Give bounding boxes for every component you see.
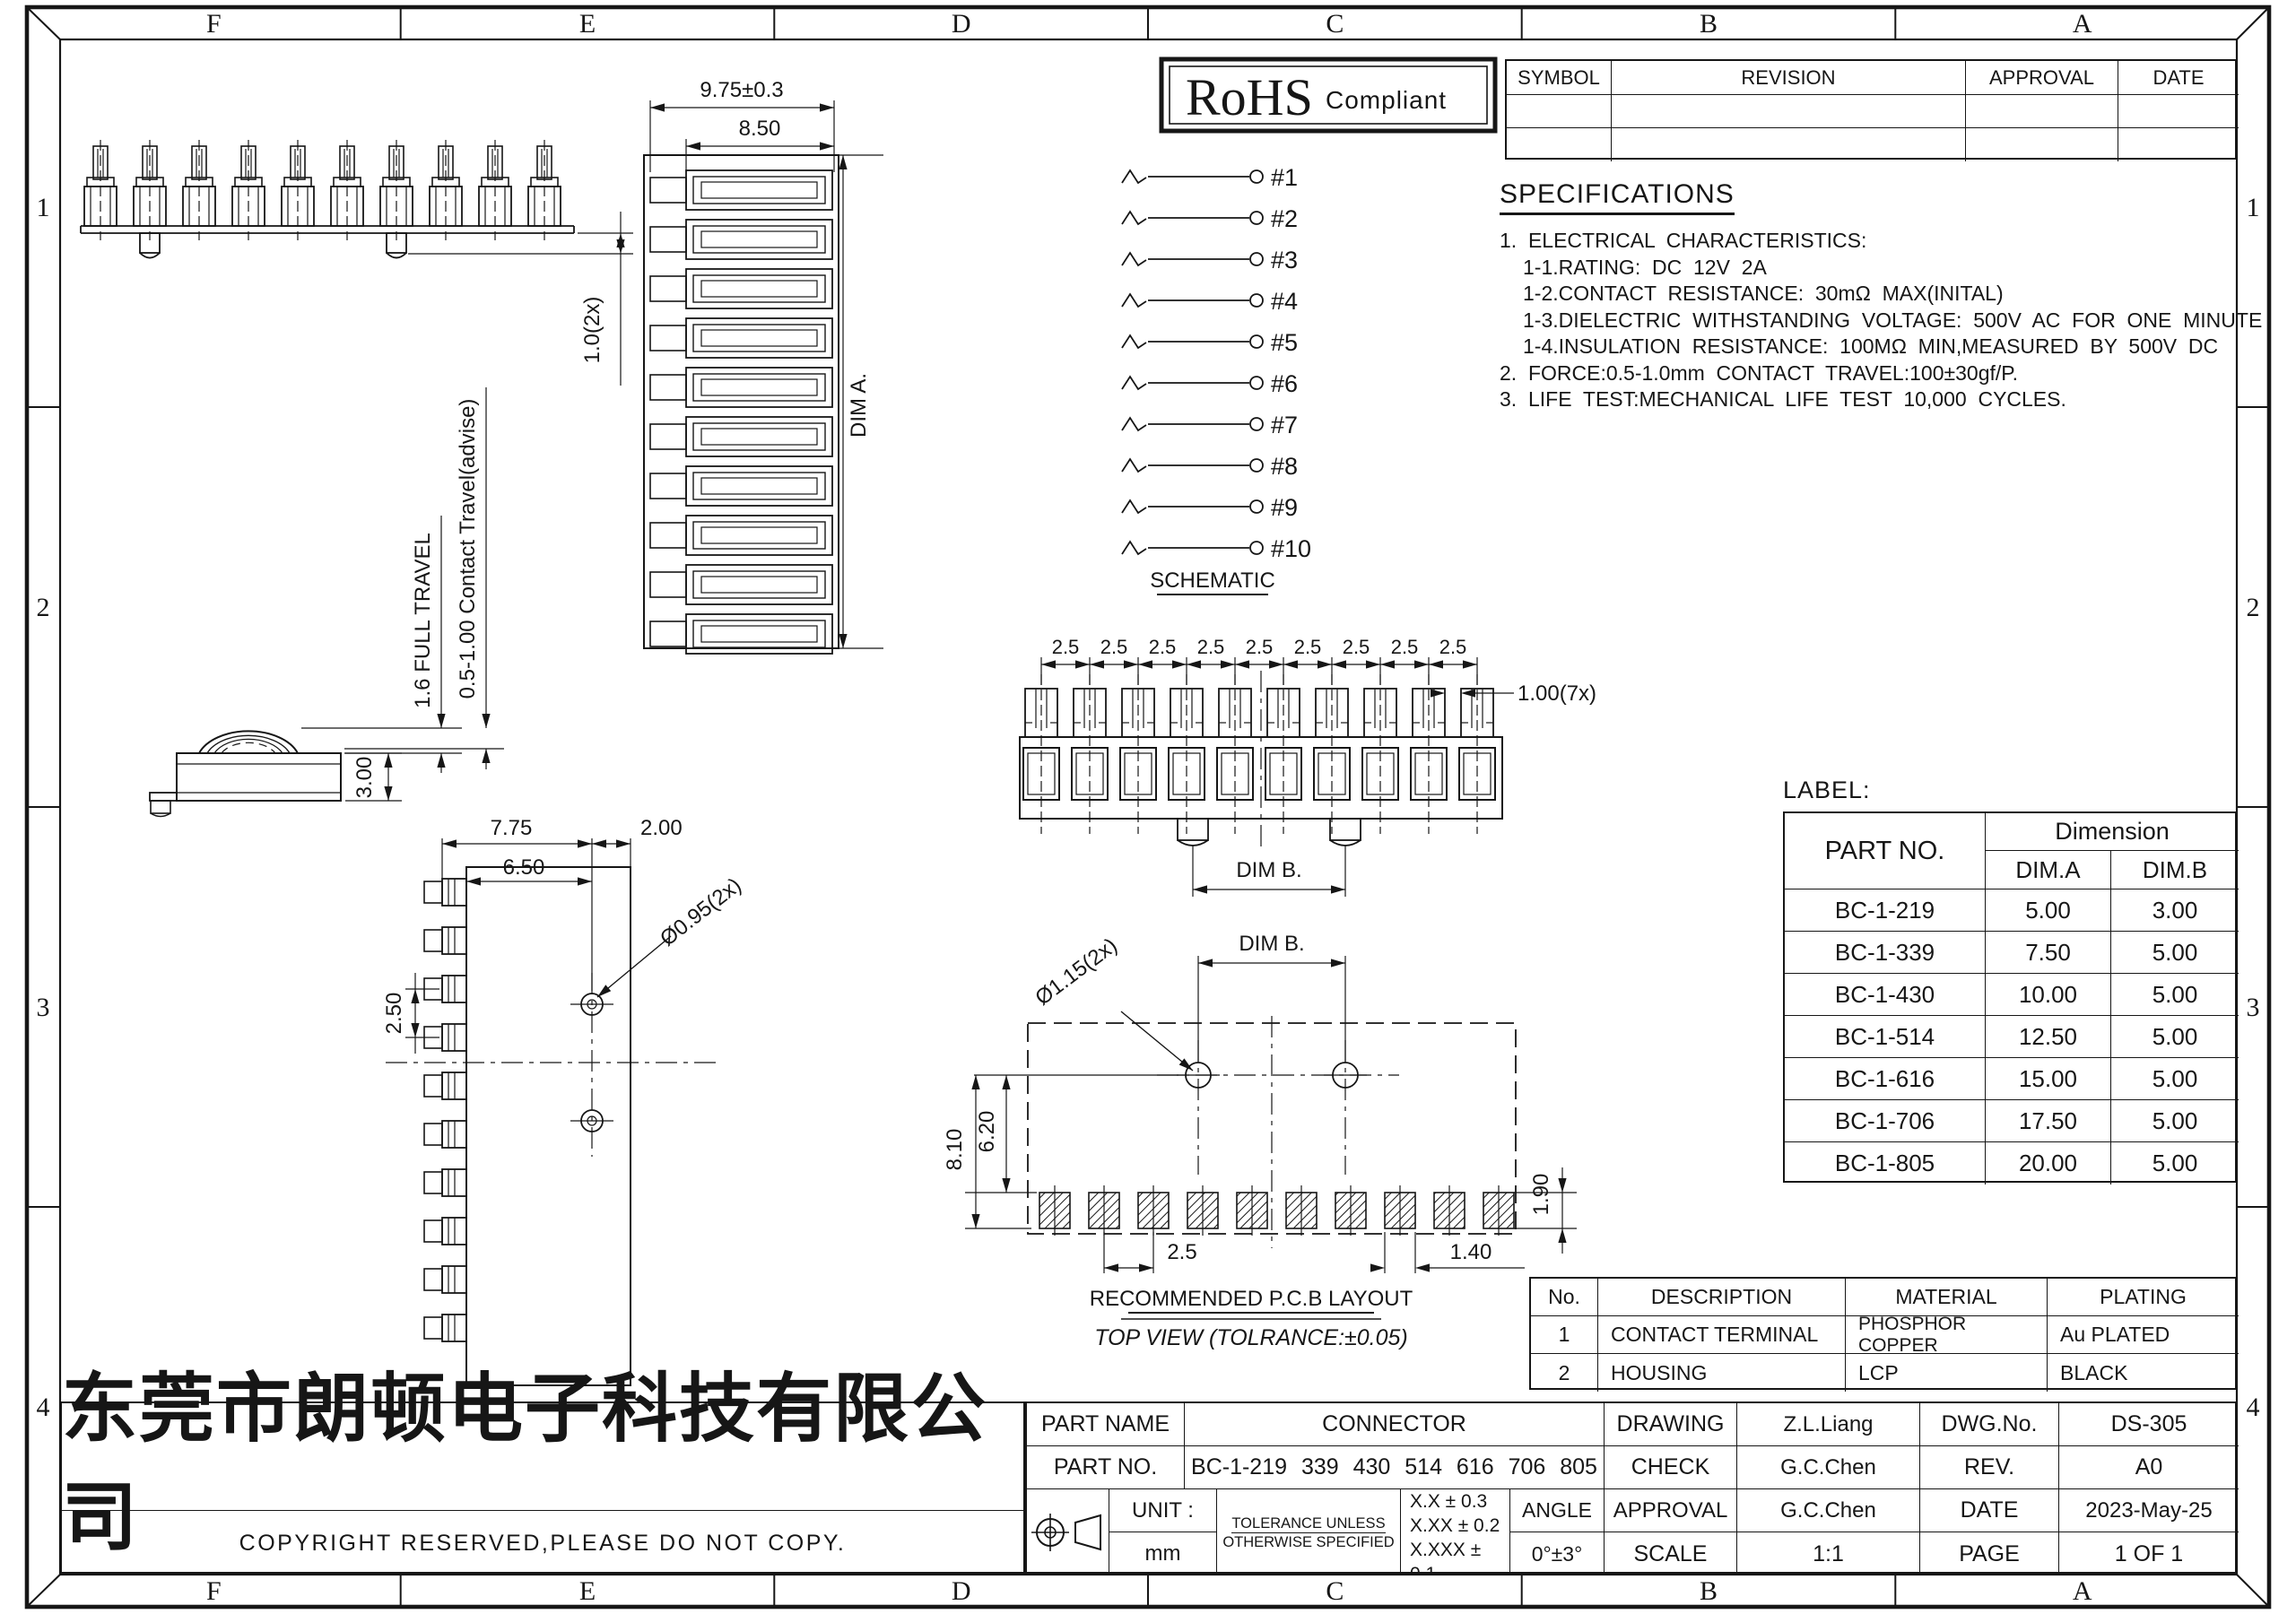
border-column-letter: D [952,9,971,39]
rev-value: A0 [2059,1446,2239,1489]
dim-hole-0-95: Ø0.95(2x) [656,873,746,951]
dim-7-75: 7.75 [491,816,533,840]
label-table-cell: 5.00 [2111,1142,2239,1184]
border-column-letter: B [1700,9,1718,39]
rohs-title: RoHS [1186,68,1313,126]
schematic-pin-label: #5 [1271,329,1298,356]
tolerance-xxx: X.XXX ± 0.1 [1410,1538,1509,1575]
dim-8-10: 8.10 [943,1129,967,1171]
view-front-center: 2.52.52.52.52.52.52.52.52.51.00(7x)DIM B… [1020,636,1596,897]
parts-cell: LCP [1846,1354,2048,1392]
unit-value: mm [1109,1532,1217,1575]
dim-contact-travel: 0.5-1.00 Contact Travel(advise) [456,399,480,699]
rev-label: REV. [1920,1446,2059,1489]
border-column-letter: E [579,1576,596,1606]
label-table-dimension-header: Dimension [1986,813,2239,851]
revision-empty-cell [1507,95,1612,128]
parts-cell: Au PLATED [2048,1316,2239,1354]
border-column-letter: C [1326,1576,1344,1606]
label-table: PART NO. Dimension DIM.A DIM.B BC-1-2195… [1783,811,2237,1183]
spec-line: 1-4.INSULATION RESISTANCE: 100MΩ MIN,MEA… [1500,334,2244,360]
specifications-lines: 1. ELECTRICAL CHARACTERISTICS:1-1.RATING… [1500,228,2244,413]
border-row-number: 4 [37,1393,50,1422]
label-table-cell: BC-1-219 [1785,889,1986,932]
revision-empty-cell [2118,128,2239,161]
schematic-pin-label: #7 [1271,412,1298,438]
border-column-letter: F [206,9,222,39]
label-table-cell: 7.50 [1986,932,2111,974]
parts-header-no: No. [1531,1279,1598,1316]
specifications-title: SPECIFICATIONS [1500,179,1735,215]
label-table-cell: 5.00 [2111,1058,2239,1100]
dim-a-label: DIM A. [847,373,871,438]
border-row-number: 1 [37,193,50,222]
schematic-pin-label: #4 [1271,288,1298,315]
specifications-block: SPECIFICATIONS 1. ELECTRICAL CHARACTERIS… [1500,179,2244,413]
rohs-subtitle: Compliant [1326,86,1447,114]
revision-empty-cell [1612,95,1966,128]
view-top-left: 7.752.006.502.50Ø0.95(2x) [382,816,746,1385]
border-row-number: 2 [2247,593,2260,622]
dim-2-50: 2.50 [382,993,406,1035]
border-column-letter: D [952,1576,971,1606]
revision-header-date: DATE [2118,61,2239,95]
tolerance-xx: X.XX ± 0.2 [1410,1514,1500,1538]
spec-line: 1-3.DIELECTRIC WITHSTANDING VOLTAGE: 500… [1500,308,2244,334]
tolerance-x: X.X ± 0.3 [1410,1489,1487,1514]
company-name: 东莞市朗顿电子科技有限公司 [62,1403,1023,1511]
view-side-contact: 1.6 FULL TRAVEL0.5-1.00 Contact Travel(a… [150,387,504,817]
label-table-cell: BC-1-430 [1785,974,1986,1016]
dim-2-5-pcb: 2.5 [1167,1240,1196,1264]
border-row-number: 2 [37,593,50,622]
spec-line: 3. LIFE TEST:MECHANICAL LIFE TEST 10,000… [1500,386,2244,413]
label-table-cell: 20.00 [1986,1142,2111,1184]
revision-empty-cell [1612,128,1966,161]
parts-table: No. DESCRIPTION MATERIAL PLATING 1 CONTA… [1529,1277,2237,1390]
tolerance-note-line2: OTHERWISE SPECIFIED [1222,1533,1394,1551]
view-pcb-layout: DIM B.Ø1.15(2x)6.208.101.902.51.40RECOMM… [943,932,1577,1350]
dim-6-50: 6.50 [503,855,545,880]
label-table-cell: BC-1-805 [1785,1142,1986,1184]
dim-1-00-7x: 1.00(7x) [1518,681,1596,706]
label-table-cell: BC-1-339 [1785,932,1986,974]
unit-label: UNIT : [1109,1489,1217,1532]
dim-full-travel: 1.6 FULL TRAVEL [411,533,435,708]
page-value: 1 OF 1 [2059,1532,2239,1575]
dim-pitch-2-5: 2.5 [1149,636,1177,658]
dim-hole-1-15: Ø1.15(2x) [1031,933,1121,1011]
tolerance-note-line1: TOLERANCE UNLESS [1231,1514,1385,1533]
label-table-title-text: LABEL: [1783,777,1871,803]
revision-empty-cell [1507,128,1612,161]
company-block: 东莞市朗顿电子科技有限公司 COPYRIGHT RESERVED,PLEASE … [60,1401,1025,1574]
dim-b-pcb: DIM B. [1239,932,1304,956]
dim-pitch-2-5: 2.5 [1100,636,1128,658]
parts-cell: 1 [1531,1316,1598,1354]
parts-header-plating: PLATING [2048,1279,2239,1316]
approval-value: G.C.Chen [1737,1489,1920,1532]
border-row-number: 3 [2247,993,2260,1022]
dwg-no-label: DWG.No. [1920,1403,2059,1446]
view-terminal-row-front: 1.0(2x) [81,140,633,386]
revision-empty-cell [1966,95,2118,128]
part-no-label: PART NO. [1027,1446,1185,1489]
label-table-cell: 3.00 [2111,889,2239,932]
label-table-cell: 10.00 [1986,974,2111,1016]
page-label: PAGE [1920,1532,2059,1575]
view-front-vertical: 9.75±0.38.50DIM A. [644,78,883,654]
label-table-part-no-header: PART NO. [1785,813,1986,889]
border-column-letter: B [1700,1576,1718,1606]
dim-6-20: 6.20 [975,1111,999,1153]
border-row-number: 3 [37,993,50,1022]
parts-cell: BLACK [2048,1354,2239,1392]
dwg-no-value: DS-305 [2059,1403,2239,1446]
spec-line: 2. FORCE:0.5-1.0mm CONTACT TRAVEL:100±30… [1500,360,2244,387]
parts-header-material: MATERIAL [1846,1279,2048,1316]
dim-1-0-2x: 1.0(2x) [580,297,604,364]
drawing-value: Z.L.Liang [1737,1403,1920,1446]
parts-cell: CONTACT TERMINAL [1598,1316,1846,1354]
label-table-cell: BC-1-616 [1785,1058,1986,1100]
tolerance-note: TOLERANCE UNLESS OTHERWISE SPECIFIED [1217,1489,1401,1575]
projection-symbol-cell [1027,1489,1109,1575]
revision-empty-cell [1966,128,2118,161]
label-table-cell: BC-1-514 [1785,1016,1986,1058]
dim-pitch-2-5: 2.5 [1294,636,1322,658]
tolerance-values: X.X ± 0.3 X.XX ± 0.2 X.XXX ± 0.1 [1401,1489,1510,1575]
label-table-cell: 15.00 [1986,1058,2111,1100]
border-row-number: 4 [2247,1393,2260,1422]
border-column-letter: E [579,9,596,39]
drawing-label: DRAWING [1605,1403,1737,1446]
angle-value: 0°±3° [1510,1532,1605,1575]
parts-header-description: DESCRIPTION [1598,1279,1846,1316]
title-block: PART NAME CONNECTOR DRAWING Z.L.Liang DW… [1025,1401,2237,1574]
approval-label: APPROVAL [1605,1489,1737,1532]
revision-header-revision: REVISION [1612,61,1966,95]
scale-value: 1:1 [1737,1532,1920,1575]
label-table-dim-b-header: DIM.B [2111,851,2239,889]
pcb-layout-caption: RECOMMENDED P.C.B LAYOUT [1090,1287,1413,1311]
spec-line: 1-1.RATING: DC 12V 2A [1500,255,2244,282]
label-table-cell: BC-1-706 [1785,1100,1986,1142]
dim-3-00: 3.00 [352,757,377,799]
parts-cell: PHOSPHOR COPPER [1846,1316,2048,1354]
dim-1-90: 1.90 [1529,1174,1553,1216]
label-table-cell: 5.00 [2111,974,2239,1016]
label-table-cell: 12.50 [1986,1016,2111,1058]
spec-line: 1. ELECTRICAL CHARACTERISTICS: [1500,228,2244,255]
label-table-cell: 5.00 [2111,1100,2239,1142]
dim-pitch-2-5: 2.5 [1391,636,1419,658]
schematic-caption: SCHEMATIC [1150,568,1275,593]
label-table-cell: 17.50 [1986,1100,2111,1142]
part-no-value: BC-1-219 339 430 514 616 706 805 [1185,1446,1605,1489]
drawing-sheet: FFEEDDCCBBAA11223344RoHSCompliant#1#2#3#… [0,0,2296,1614]
part-name-label: PART NAME [1027,1403,1185,1446]
parts-cell: 2 [1531,1354,1598,1392]
label-table-dim-a-header: DIM.A [1986,851,2111,889]
dim-pitch-2-5: 2.5 [1439,636,1467,658]
schematic-pin-label: #9 [1271,494,1298,521]
revision-table: SYMBOL REVISION APPROVAL DATE [1505,59,2237,160]
border-column-letter: C [1326,9,1344,39]
border-row-number: 1 [2247,193,2260,222]
pcb-top-view-caption: TOP VIEW (TOLRANCE:±0.05) [1094,1325,1407,1350]
dim-pitch-2-5: 2.5 [1197,636,1225,658]
date-value: 2023-May-25 [2059,1489,2239,1532]
schematic-pin-label: #1 [1271,164,1298,191]
angle-label: ANGLE [1510,1489,1605,1532]
schematic-pin-label: #8 [1271,453,1298,480]
schematic-pin-label: #10 [1271,535,1311,562]
copyright-notice: COPYRIGHT RESERVED,PLEASE DO NOT COPY. [62,1511,1023,1575]
label-table-cell: 5.00 [2111,932,2239,974]
dim-b-label: DIM B. [1236,858,1301,882]
schematic-pin-label: #3 [1271,247,1298,273]
label-table-title: LABEL: [1783,777,1871,803]
dim-1-40: 1.40 [1450,1240,1492,1264]
spec-line: 1-2.CONTACT RESISTANCE: 30mΩ MAX(INITAL) [1500,281,2244,308]
check-value: G.C.Chen [1737,1446,1920,1489]
schematic-pin-label: #6 [1271,370,1298,397]
part-name-value: CONNECTOR [1185,1403,1605,1446]
revision-header-symbol: SYMBOL [1507,61,1612,95]
border-column-letter: A [2073,9,2092,39]
revision-header-approval: APPROVAL [1966,61,2118,95]
parts-cell: HOUSING [1598,1354,1846,1392]
check-label: CHECK [1605,1446,1737,1489]
revision-empty-cell [2118,95,2239,128]
scale-label: SCALE [1605,1532,1737,1575]
border-column-letter: F [206,1576,222,1606]
schematic-pin-label: #2 [1271,205,1298,232]
label-table-cell: 5.00 [2111,1016,2239,1058]
projection-angle-icon [1029,1492,1108,1573]
dim-pitch-2-5: 2.5 [1246,636,1274,658]
border-column-letter: A [2073,1576,2092,1606]
dim-pitch-2-5: 2.5 [1052,636,1080,658]
dim-pitch-2-5: 2.5 [1343,636,1370,658]
date-label: DATE [1920,1489,2059,1532]
schematic-view: #1#2#3#4#5#6#7#8#9#10SCHEMATIC [1122,164,1311,594]
rohs-badge: RoHSCompliant [1161,59,1495,131]
label-table-cell: 5.00 [1986,889,2111,932]
dim-9-75: 9.75±0.3 [700,78,783,102]
dim-2-00: 2.00 [640,816,683,840]
dim-8-50: 8.50 [739,117,781,141]
